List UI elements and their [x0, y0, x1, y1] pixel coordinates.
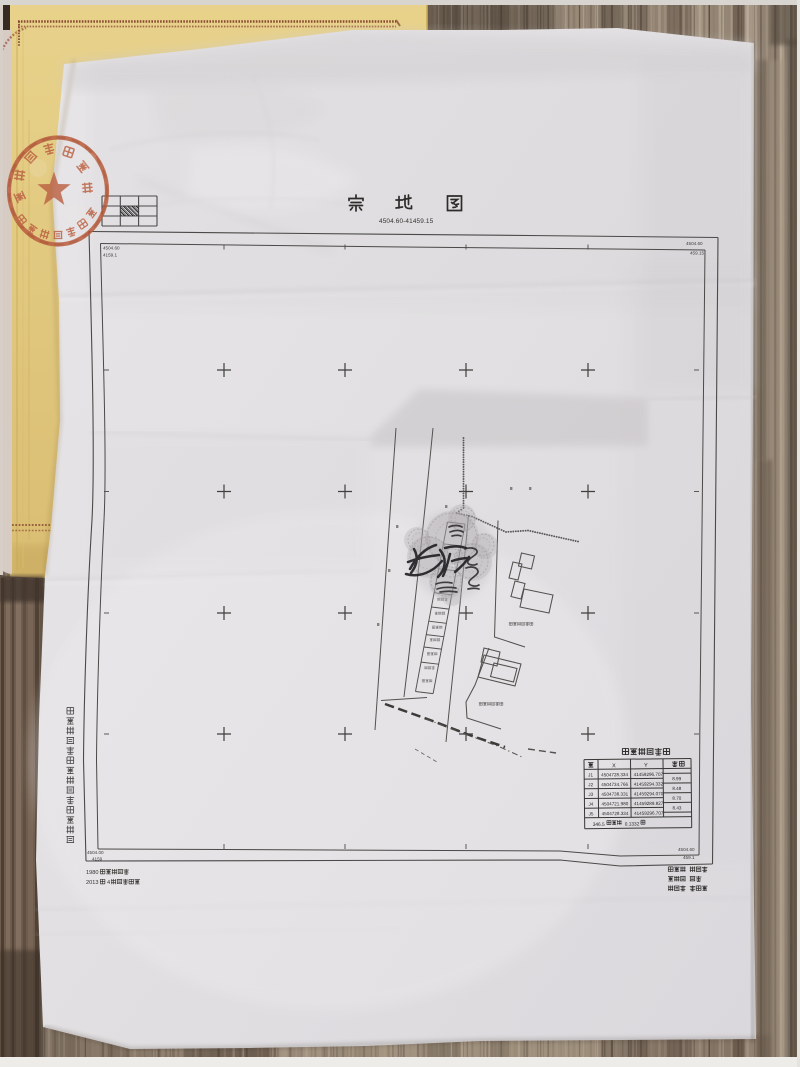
- svg-text:4504.60: 4504.60: [678, 847, 695, 852]
- svg-text:4504721.980: 4504721.980: [601, 801, 628, 806]
- svg-text:459.15: 459.15: [690, 251, 704, 256]
- svg-text:4504.60: 4504.60: [686, 241, 703, 246]
- svg-text:4504.60-41459.15: 4504.60-41459.15: [379, 218, 434, 225]
- svg-text:8.99: 8.99: [672, 776, 681, 781]
- svg-text:J1: J1: [588, 773, 593, 778]
- svg-text:4504728.334: 4504728.334: [602, 811, 629, 816]
- svg-text:459.1: 459.1: [683, 855, 695, 860]
- svg-text:8.43: 8.43: [672, 805, 681, 810]
- svg-text:4159: 4159: [92, 857, 103, 862]
- svg-text:41459294.070: 41459294.070: [634, 791, 664, 796]
- svg-text:J2: J2: [588, 782, 593, 787]
- svg-text:4504.00: 4504.00: [87, 850, 104, 855]
- svg-text:41459296.707: 41459296.707: [634, 811, 664, 816]
- svg-text:J4: J4: [588, 802, 593, 807]
- svg-text:41459294.332: 41459294.332: [634, 781, 664, 786]
- svg-text:4504.60: 4504.60: [103, 246, 120, 251]
- svg-text:0.1332: 0.1332: [625, 821, 640, 827]
- svg-text:J3: J3: [588, 792, 593, 797]
- svg-text:2013: 2013: [86, 880, 98, 886]
- svg-text:J5: J5: [589, 811, 594, 816]
- svg-text:4: 4: [107, 880, 110, 886]
- svg-text:Y: Y: [644, 763, 648, 769]
- svg-text:4504728.334: 4504728.334: [601, 772, 628, 777]
- svg-text:346.5: 346.5: [593, 822, 605, 828]
- svg-text:1980: 1980: [86, 870, 98, 876]
- svg-text:8.48: 8.48: [672, 786, 681, 791]
- svg-text:4504738.331: 4504738.331: [601, 792, 628, 797]
- svg-text:4159.1: 4159.1: [103, 253, 117, 258]
- svg-text:8.70: 8.70: [672, 796, 681, 801]
- svg-text:41459289.827: 41459289.827: [634, 801, 664, 806]
- svg-text:41459296.707: 41459296.707: [634, 772, 664, 777]
- svg-text:4504734.766: 4504734.766: [601, 782, 628, 787]
- svg-text:X: X: [612, 763, 616, 769]
